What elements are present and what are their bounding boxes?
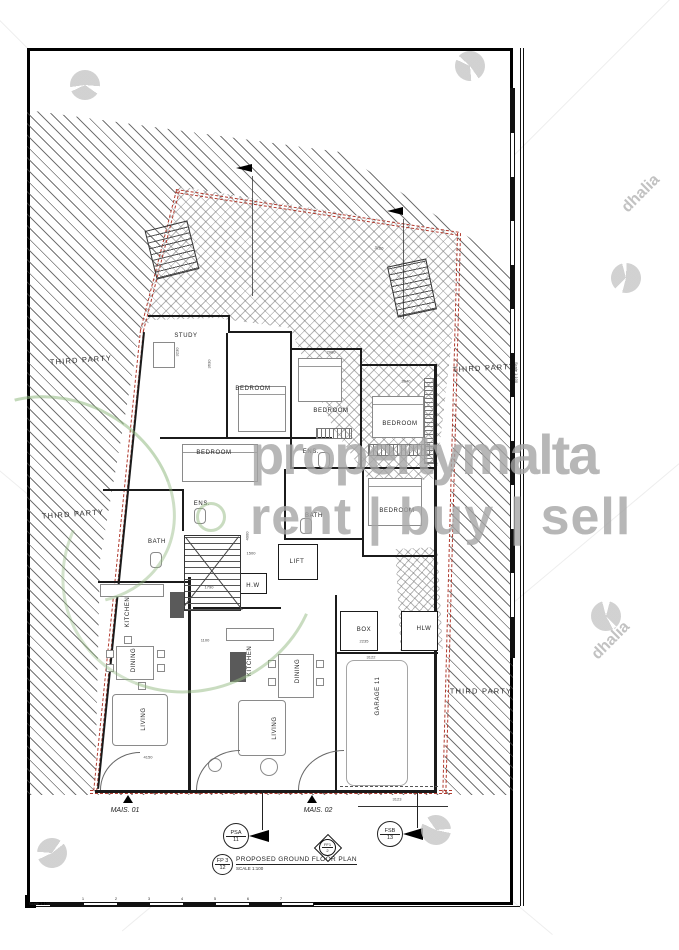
dimension-3122: 3122 xyxy=(367,655,376,660)
wall-segment xyxy=(226,333,228,437)
room-label-bedroom: BEDROOM xyxy=(379,508,414,514)
marker-ff1: FF1 2 xyxy=(319,839,336,856)
wall-segment xyxy=(360,364,437,366)
drawing-title: PROPOSED GROUND FLOOR PLAN xyxy=(236,856,357,865)
dimension-2235: 2235 xyxy=(360,639,369,644)
scalebar-tick: 3 xyxy=(148,896,150,901)
bed xyxy=(372,396,424,438)
scalebar-tick: 4 xyxy=(181,896,183,901)
wall-segment xyxy=(160,437,332,439)
dimension-line xyxy=(358,806,448,807)
agency-logo-icon xyxy=(609,261,644,296)
room-label-hlw: HLW xyxy=(417,626,432,632)
marker-pole xyxy=(262,790,263,830)
section-flag-icon xyxy=(387,207,403,215)
sheet-num: 12 xyxy=(219,865,225,871)
wardrobe xyxy=(316,428,352,439)
dimension-3040: 3040 xyxy=(402,379,411,384)
room-label-box: BOX xyxy=(357,627,371,633)
entrance-arrow-icon xyxy=(123,795,133,803)
dimension-3123: 3123 xyxy=(393,797,402,802)
dimension-3230: 3230 xyxy=(175,348,180,357)
entrance-arrow-icon xyxy=(307,795,317,803)
marker-flag-icon xyxy=(403,828,423,840)
wall-segment xyxy=(434,364,437,792)
room-label-living: LIVING xyxy=(272,716,278,739)
marker-psa-ref: PSA xyxy=(226,830,245,837)
section-line xyxy=(403,219,404,319)
marker-psa-num: 11 xyxy=(233,837,239,843)
marker-fsb-num: 13 xyxy=(387,835,393,841)
wardrobe xyxy=(368,444,430,456)
bed xyxy=(298,358,342,402)
marker-fsb-ref: FSB xyxy=(380,828,399,835)
scalebar-tick: 2 xyxy=(115,896,117,901)
sheet-ref: FP 3 xyxy=(215,858,230,865)
scalebar-corner-mark xyxy=(25,905,36,908)
wall-segment xyxy=(148,315,230,317)
room-label-bedroom: BEDROOM xyxy=(235,386,270,392)
chair xyxy=(316,660,324,668)
dimension-3110: 3110 xyxy=(432,416,437,425)
sofa xyxy=(238,700,286,756)
right-ruler-label: Scale 1:100 xyxy=(514,362,519,383)
marker-psa: PSA 11 xyxy=(223,823,249,849)
marker-flag-icon xyxy=(249,830,269,842)
wall-segment xyxy=(362,555,436,557)
right-ruler-line xyxy=(520,48,521,906)
scalebar-line xyxy=(27,906,520,907)
title-block: PROPOSED GROUND FLOOR PLAN SCALE 1:100 xyxy=(236,856,357,871)
watermark-agency-text: dhalia xyxy=(588,618,633,663)
scalebar-tick: 6 xyxy=(247,896,249,901)
room-label-bedroom: BEDROOM xyxy=(382,421,417,427)
room-label-living: LIVING xyxy=(141,707,147,730)
room-label-study: STUDY xyxy=(174,333,197,339)
bed xyxy=(368,478,422,526)
scalebar-tick: 7 xyxy=(280,896,282,901)
wall-segment xyxy=(290,350,292,468)
chair xyxy=(316,678,324,686)
floor-plan-sheet: THIRD PARTYTHIRD PARTYTHIRD PARTYTHIRD P… xyxy=(0,0,679,950)
garage-door xyxy=(340,786,438,787)
marker-pole xyxy=(417,792,418,828)
marker-fsb: FSB 13 xyxy=(377,821,403,847)
watermark-agency-text: dhalia xyxy=(618,171,663,216)
toilet xyxy=(318,452,330,468)
room-label-garage-11: GARAGE 11 xyxy=(375,677,381,716)
agency-logo-icon xyxy=(587,597,625,635)
mais-01-label: MAIS. 01 xyxy=(111,807,140,814)
sofa xyxy=(112,694,168,746)
dimension-3630: 3630 xyxy=(207,360,212,369)
bed xyxy=(238,386,286,432)
wall-segment xyxy=(360,366,362,467)
leaf-watermark xyxy=(196,502,226,532)
marker-ff1-num: 2 xyxy=(326,848,328,853)
dimension-2980: 2980 xyxy=(327,350,336,355)
wall-segment xyxy=(95,790,437,793)
dimension-4150: 4150 xyxy=(144,755,153,760)
wall-segment xyxy=(362,469,364,557)
plant xyxy=(260,758,278,776)
scalebar-tick: 5 xyxy=(214,896,216,901)
sheet-number-circle: FP 3 12 xyxy=(212,854,233,875)
room-label-bedroom: BEDROOM xyxy=(313,408,348,414)
wall-segment xyxy=(228,331,292,333)
mais-02-label: MAIS. 02 xyxy=(304,807,333,814)
section-line xyxy=(252,176,253,296)
drawing-scale: SCALE 1:100 xyxy=(236,866,357,871)
study-desk xyxy=(153,342,175,368)
wall-segment xyxy=(335,652,438,654)
chair xyxy=(268,678,276,686)
third-party-label-third-party: THIRD PARTY xyxy=(450,687,513,696)
room-label-ens-: ENS. xyxy=(303,449,319,455)
room-label-dining: DINING xyxy=(295,659,301,684)
section-flag-icon xyxy=(236,164,252,172)
scalebar-tick: 1 xyxy=(82,896,84,901)
right-ruler-line xyxy=(523,48,524,906)
dimension-3100: 3100 xyxy=(374,245,384,251)
scalebar-blocks xyxy=(50,902,314,906)
